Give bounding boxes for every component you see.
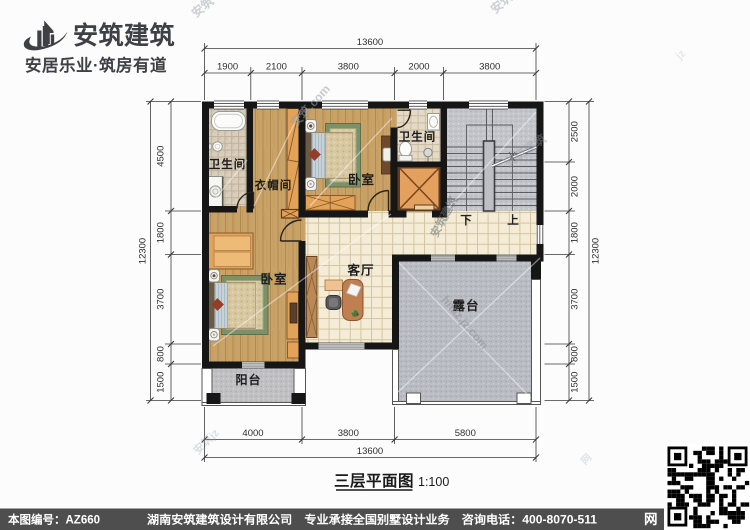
svg-text:网: 网: [644, 512, 658, 527]
svg-text:卫生间: 卫生间: [209, 157, 247, 171]
svg-text:3800: 3800: [338, 62, 359, 73]
svg-text:三层平面图: 三层平面图: [334, 472, 414, 490]
svg-text:安筑建筑: 安筑建筑: [73, 21, 175, 50]
svg-text:湖南安筑建筑设计有限公司 专业承接全国别墅设计业务 咨询电话: 湖南安筑建筑设计有限公司 专业承接全国别墅设计业务 咨询电话：400-8070-…: [147, 513, 598, 527]
svg-text:卧室: 卧室: [260, 272, 287, 287]
svg-text:3800: 3800: [479, 62, 500, 73]
svg-text:下: 下: [460, 214, 472, 227]
svg-text:2000: 2000: [570, 176, 581, 197]
svg-text:12300: 12300: [591, 238, 602, 264]
svg-text:卧室: 卧室: [348, 172, 375, 187]
svg-text:客厅: 客厅: [346, 263, 374, 278]
svg-text:2500: 2500: [570, 121, 581, 142]
svg-text:4500: 4500: [156, 146, 167, 167]
svg-text:2000: 2000: [408, 62, 429, 73]
svg-text:卫生间: 卫生间: [399, 130, 437, 144]
svg-text:安居乐业·筑房有道: 安居乐业·筑房有道: [25, 55, 167, 75]
svg-text:1500: 1500: [156, 372, 167, 393]
svg-text:上: 上: [507, 213, 519, 227]
svg-text:5800: 5800: [455, 428, 476, 439]
svg-text:13600: 13600: [357, 446, 383, 457]
svg-text:800: 800: [570, 346, 581, 362]
svg-text:800: 800: [156, 346, 167, 362]
svg-text:衣帽间: 衣帽间: [255, 178, 293, 192]
svg-text:1:100: 1:100: [418, 475, 449, 489]
svg-text:1500: 1500: [570, 372, 581, 393]
svg-text:1800: 1800: [570, 222, 581, 243]
svg-text:3700: 3700: [156, 289, 167, 310]
svg-text:2100: 2100: [266, 62, 287, 73]
svg-text:1900: 1900: [217, 62, 238, 73]
svg-text:3800: 3800: [338, 428, 359, 439]
svg-text:1800: 1800: [156, 222, 167, 243]
svg-text:12300: 12300: [138, 238, 149, 264]
svg-text:4000: 4000: [242, 428, 263, 439]
svg-text:本图编号：AZ660: 本图编号：AZ660: [8, 513, 100, 527]
svg-text:阳台: 阳台: [235, 372, 261, 387]
svg-text:13600: 13600: [357, 37, 383, 48]
svg-text:3700: 3700: [570, 289, 581, 310]
